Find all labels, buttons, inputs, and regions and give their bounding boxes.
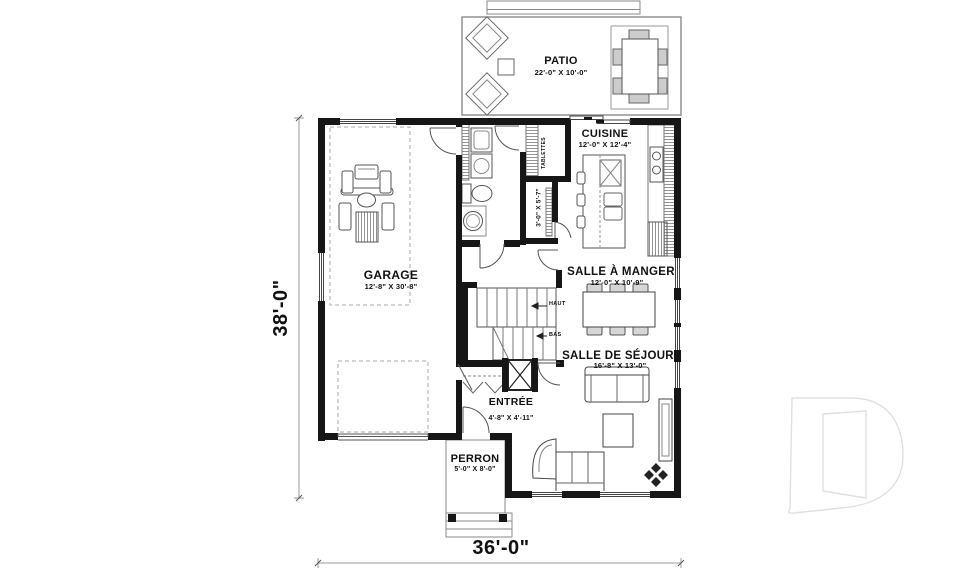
laundry-closet — [462, 124, 492, 180]
stairs-up-label: HAUT — [549, 302, 565, 308]
floor-plan-drawing — [0, 0, 960, 569]
kitchen-island — [577, 155, 625, 248]
powder-room-fixtures — [460, 184, 492, 236]
room-label-patio: PATIO — [501, 56, 621, 68]
room-dims-salle-a-manger: 12'-0" X 10'-9" — [547, 279, 687, 287]
pantry-dims-label: 3'-0" X 5'-7" — [537, 173, 546, 243]
tv-console — [659, 399, 672, 461]
stairs-down-label: BAS — [549, 333, 562, 339]
garage-door — [338, 434, 428, 440]
overall-width-dimension: 36'-0" — [441, 538, 561, 559]
room-dims-entree: 4'-8" X 4'-11" — [461, 415, 561, 422]
room-dims-perron: 5'-0" X 8'-0" — [425, 466, 525, 473]
watermark-d-logo — [789, 398, 903, 513]
room-label-salle-a-manger: SALLE À MANGER — [551, 266, 691, 278]
dining-set — [583, 284, 655, 335]
room-label-perron: PERRON — [425, 454, 525, 466]
garage-tractor — [339, 165, 394, 242]
patio-sliding-door — [570, 116, 630, 124]
room-dims-garage: 12'-8" X 30'-8" — [331, 283, 451, 291]
overall-height-dimension: 38'-0" — [271, 258, 295, 358]
floor-plan-page: PATIO 22'-0" X 10'-0" CUISINE 12'-0" X 1… — [0, 0, 960, 569]
staircase — [477, 288, 556, 360]
room-label-cuisine: CUISINE — [545, 129, 665, 141]
plant-icon — [644, 463, 668, 487]
room-label-entree: ENTRÉE — [461, 397, 561, 408]
shaft-box — [508, 360, 532, 390]
room-label-garage: GARAGE — [331, 269, 451, 282]
room-dims-patio: 22'-0" X 10'-0" — [501, 69, 621, 77]
room-dims-cuisine: 12'-0" X 12'-4" — [545, 141, 665, 149]
room-dims-salle-de-sejour: 16'-8" X 13'-0" — [550, 362, 690, 370]
